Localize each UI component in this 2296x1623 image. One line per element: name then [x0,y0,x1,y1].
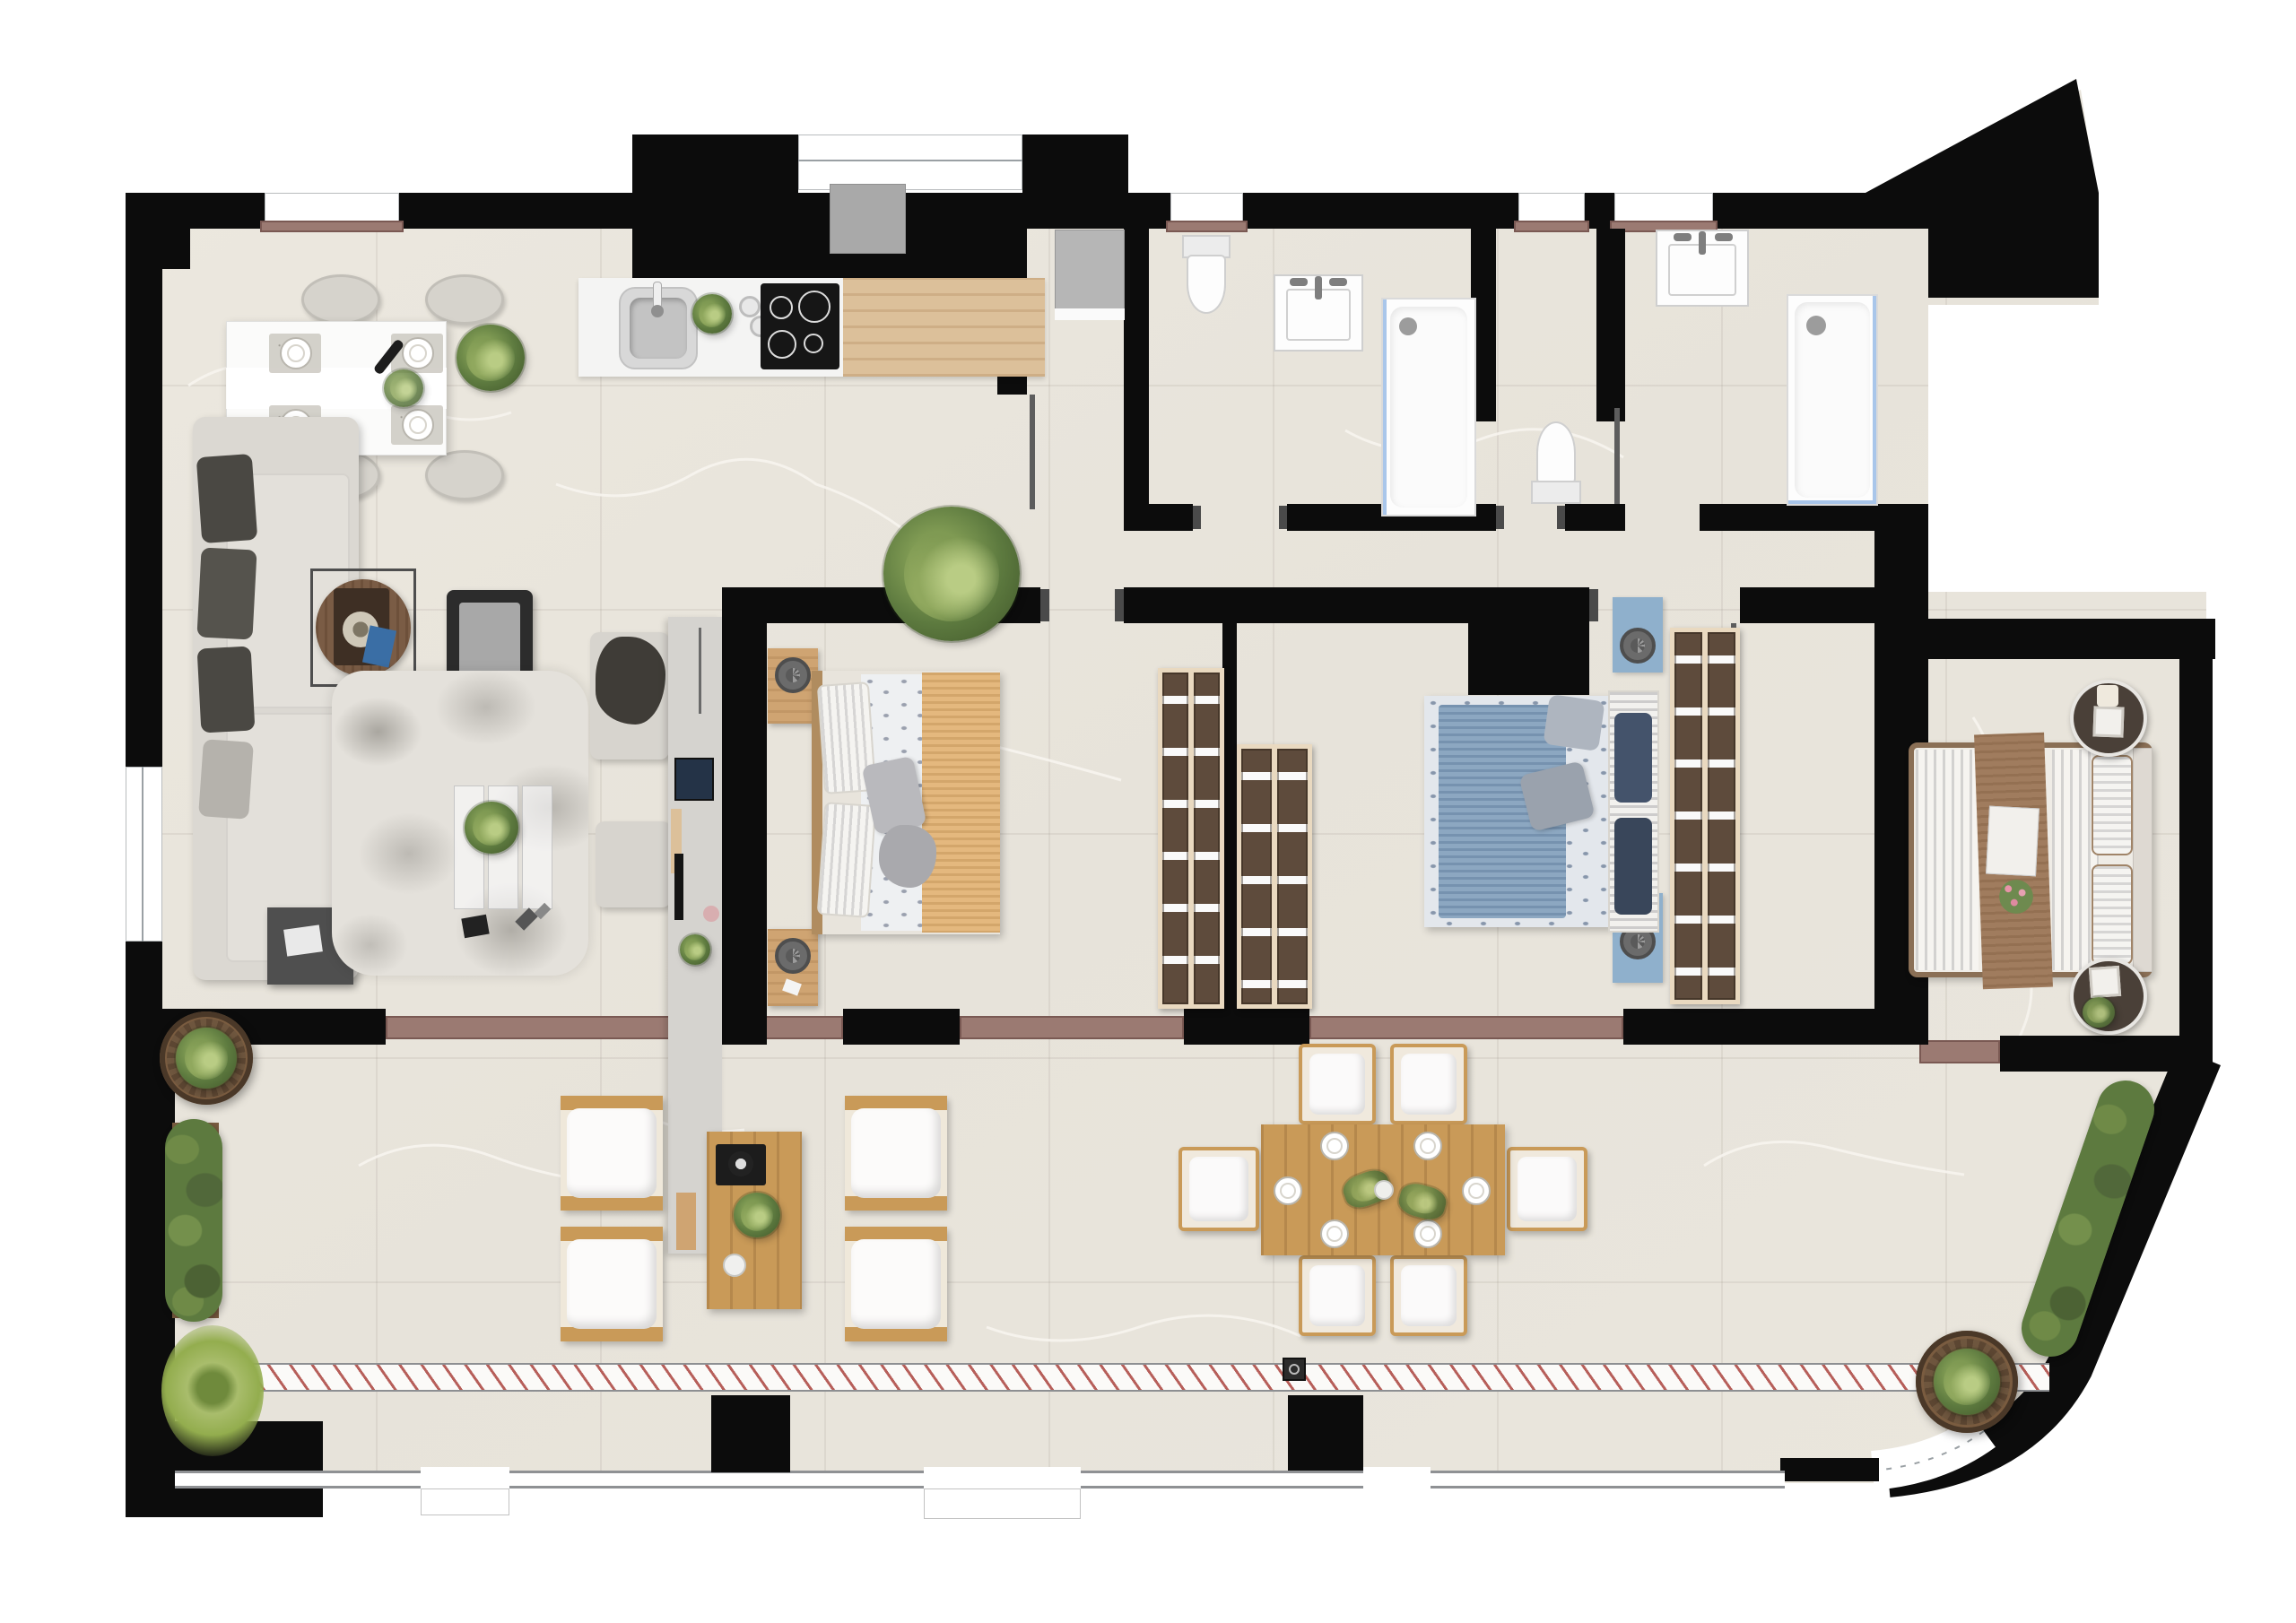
toilet-bowl [1187,255,1226,314]
outdoor-dining-chair [1390,1044,1467,1124]
sofa-pillow [196,454,258,543]
centerpiece-wreath [384,369,423,407]
plate [280,337,312,369]
bed-pillow [2092,755,2133,855]
window-frame-line [142,767,143,942]
drain-ring [1289,1364,1300,1375]
throw-blanket [879,825,936,888]
window-sill [1514,221,1589,232]
side-table-paper [283,924,323,956]
shower-drain [1806,316,1826,335]
wall-wc-bathroom2 [1596,229,1625,421]
wall-bottom [843,1009,960,1045]
nightstand-frame-deco [2089,966,2121,998]
wall-top [1243,193,1518,229]
table-bowl [723,1254,746,1277]
railing-opening [1363,1467,1431,1494]
console-art [674,758,714,801]
terrace-door-sill [960,1016,1184,1039]
wall-bottom [1184,1009,1309,1045]
hob-burner [768,330,796,359]
window-sill [260,221,404,232]
lounge-chair [845,1096,947,1211]
console-plant-sprig [680,934,710,965]
tray-record [728,1151,753,1176]
plate [402,409,434,441]
wall-bedroom3-right [2179,619,2213,1036]
door-frame-stub [1193,506,1201,529]
wall-top [1022,193,1170,229]
terrace-door-sill [1309,1016,1623,1039]
wall-terrace-bottom-right-stub [1780,1458,1879,1481]
pouf-throw [596,637,665,725]
window-living-left [126,767,162,942]
wall-bathrooms-bottom [1149,504,1193,531]
outdoor-plate [1462,1176,1491,1205]
wall-bedrooms-divider [1222,623,1237,1009]
center-dish [1374,1180,1394,1200]
door-leaf [1030,395,1035,509]
coffee-table-plant [465,802,518,854]
wardrobe-closet [1237,744,1312,1009]
console-plate [703,906,719,922]
bed-blanket-tan [922,673,1000,933]
nightstand-frame-deco [2092,706,2124,737]
hedge-plant [165,1119,222,1322]
nightstand-flowers [2083,997,2115,1028]
fridge-front [1055,308,1125,320]
plate [402,337,434,369]
glass-coffee-table-panel [522,785,552,909]
faucet-icon [1315,276,1322,299]
magazine [1986,806,2039,877]
window-sill [1166,221,1248,232]
floor-plan [0,0,2296,1623]
terrace-door-sill [1919,1040,2000,1063]
tv [674,854,683,920]
faucet-icon [651,305,664,317]
bed-headboard [2133,748,2152,972]
pouf [596,821,671,907]
lounge-chair [845,1227,947,1341]
door-frame-stub [1115,589,1124,621]
wall-closet-top [1124,587,1474,623]
console-tray [676,1193,696,1250]
nightstand-candles [2097,685,2118,707]
herb-plant [692,294,732,334]
lounge-chair [561,1096,663,1211]
terrace-pillar [1288,1395,1363,1471]
terrace-pillar [711,1395,790,1472]
wall-top-stub [1022,135,1128,195]
wardrobe-bedroom2 [1670,628,1740,1004]
shower-tub-inner [1795,302,1870,498]
faucet-handle [1715,233,1733,241]
outdoor-plate [1413,1219,1442,1248]
bed-pillow-navy [1614,713,1652,803]
outdoor-plate [1320,1132,1349,1160]
outdoor-plate [1413,1132,1442,1160]
bathtub-inner [1390,307,1467,508]
sofa-pillow [197,646,256,733]
bed-pillow-navy [1614,818,1652,915]
throw-pillow [1543,694,1605,751]
wall-bathrooms-bottom [1700,504,1928,531]
outdoor-dining-chair [1299,1255,1376,1336]
dining-chair [301,274,380,325]
floor-plant-large [883,507,1020,641]
console-handle [699,628,701,714]
faucet-handle [1329,278,1347,286]
table-plant [734,1193,780,1237]
outdoor-plate [1274,1176,1302,1205]
lounge-chair [561,1227,663,1341]
jar [739,296,761,317]
bed-pillow [817,802,877,918]
outdoor-dining-chair [1507,1147,1587,1231]
bed-pillow [2092,864,2133,965]
toilet-tank [1531,481,1581,504]
wardrobe-bedroom1 [1158,668,1224,1009]
toilet-bowl [1536,421,1576,484]
wall-top-kitchen [632,193,1022,278]
window-kitchen [798,135,1022,190]
hob-burner [798,291,831,323]
faucet-icon [1699,231,1706,255]
wall-bathroom1-left [1124,229,1149,531]
bathtub-drain [1399,317,1417,335]
wall-bedroom1-left [722,587,767,1045]
planter-plant [1934,1349,2000,1415]
stair-landing [924,1488,1081,1519]
door-frame-stub [1496,506,1504,529]
bed-duvet-striped [1916,750,1979,970]
wall-bathrooms-bottom [1565,504,1625,531]
floor-plant [457,325,525,391]
table-fan [1620,628,1656,664]
terrace-hatch-strip [175,1363,2049,1392]
vent-box [830,184,906,254]
wall-bedroom3-top [1928,619,2215,659]
stair-landing [421,1488,509,1515]
door-frame-stub [1279,506,1287,529]
dining-chair [425,450,504,500]
window-frame-line [798,160,1022,161]
table-fan [775,657,811,693]
flower-bouquet [1996,877,2036,916]
terrace-door-sill [386,1016,843,1039]
outdoor-plate [1320,1219,1349,1248]
hob-burner [804,334,823,353]
wall-bedroom3-bottom [2000,1036,2213,1072]
outdoor-dining-chair [1178,1147,1259,1231]
dining-chair [425,274,504,325]
outdoor-dining-chair [1299,1044,1376,1124]
planter-plant [176,1028,237,1089]
outdoor-dining-chair [1390,1255,1467,1336]
induction-hob [761,283,839,369]
wall-top [399,193,632,229]
sofa-pillow [196,547,257,639]
door-frame-stub [1557,506,1565,529]
cutting-board [843,278,1045,377]
fridge [1055,230,1125,318]
door-leaf [1614,408,1620,504]
door-frame-stub [1040,589,1049,621]
faucet-handle [1674,233,1692,241]
wall-top [1713,193,1857,229]
door-frame-stub [1589,589,1598,621]
wall-duct-block [1468,587,1589,695]
palm-plant [161,1325,264,1456]
hob-burner [770,296,793,319]
wall-bedroom2-top [1740,587,1874,623]
sofa-pillow [198,739,254,820]
wall-left [126,267,162,767]
table-fan [775,938,811,974]
wall-left [126,193,190,269]
wall-top-stub [632,135,798,195]
faucet-handle [1290,278,1308,286]
